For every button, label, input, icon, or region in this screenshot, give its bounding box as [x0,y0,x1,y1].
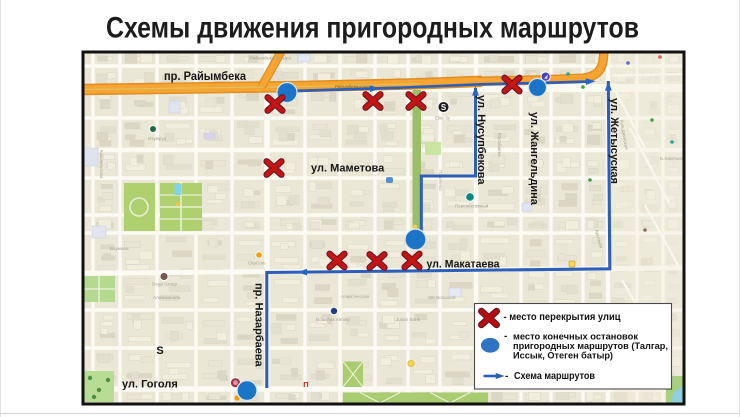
svg-text:ул. Жангельдина: ул. Жангельдина [528,112,540,206]
svg-text:Bolashak Almaty: Bolashak Almaty [316,317,351,322]
svg-text:Иссык, Отеген батыр): Иссык, Отеген батыр) [513,350,613,361]
svg-text:Схема маршрутов: Схема маршрутов [514,371,595,382]
svg-text:Райымбека батыра: Райымбека батыра [250,55,291,61]
svg-text:Изумруд: Изумруд [148,136,166,141]
svg-text:Б.Хмельницкого: Б.Хмельницкого [660,156,695,161]
svg-text:S: S [441,103,447,112]
svg-text:Elite 3y: Elite 3y [435,116,451,121]
svg-text:пр. Назарбаева: пр. Назарбаева [253,283,265,367]
svg-text:S: S [156,345,163,357]
svg-text:Кожамкулова: Кожамкулова [99,150,104,179]
svg-text:ул. Маметова: ул. Маметова [311,163,385,175]
svg-text:CityCom: CityCom [248,261,266,266]
svg-text:- место перекрытия улиц: - место перекрытия улиц [504,312,622,323]
svg-text:ул. Макатаева: ул. Макатаева [427,259,501,271]
svg-text:Павленко: Павленко [438,170,443,191]
svg-text:Перспективный: Перспективный [455,203,489,209]
svg-text:ул. Жетысуская: ул. Жетысуская [608,98,620,184]
svg-text:Мусабаева: Мусабаева [497,133,502,157]
svg-text:пр. Райымбека: пр. Райымбека [164,69,246,83]
svg-text:-: - [504,331,507,342]
svg-text:ул. Гоголя: ул. Гоголя [122,379,178,391]
svg-text:Jusan Bank: Jusan Bank [396,317,421,322]
svg-text:ул. Нусупбекова: ул. Нусупбекова [475,95,487,185]
svg-text:Схемы движения пригородных мар: Схемы движения пригородных маршрутов [106,11,639,44]
svg-text:ЖК Большой: ЖК Большой [428,294,456,300]
svg-text:Алматинская: Алматинская [341,294,370,299]
svg-text:Алимжанова: Алимжанова [153,295,181,300]
svg-text:Dega Group: Dega Group [152,282,177,287]
svg-text:-: - [505,371,508,382]
svg-text:Баумана: Баумана [110,246,129,251]
svg-text:П: П [303,380,308,389]
